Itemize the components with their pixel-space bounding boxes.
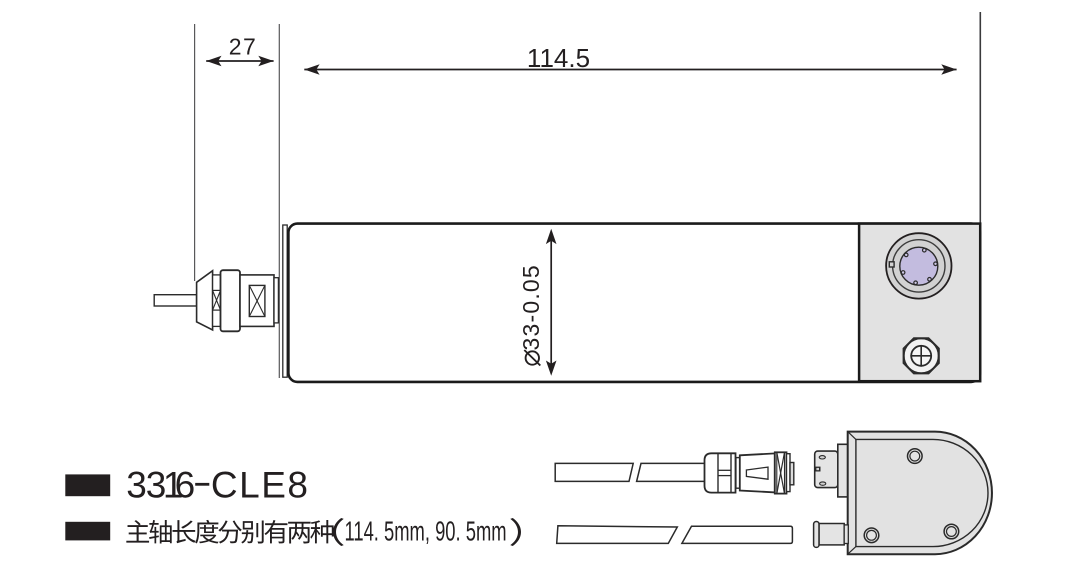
svg-text:114. 5mm, 90. 5mm: 114. 5mm, 90. 5mm [345,517,507,548]
svg-text:27: 27 [229,34,258,60]
svg-text:CLE8: CLE8 [211,465,310,506]
svg-text:6: 6 [175,465,196,506]
svg-text:33-0.05: 33-0.05 [518,264,544,350]
svg-text:114.5: 114.5 [527,43,590,73]
svg-text:3: 3 [126,465,147,506]
